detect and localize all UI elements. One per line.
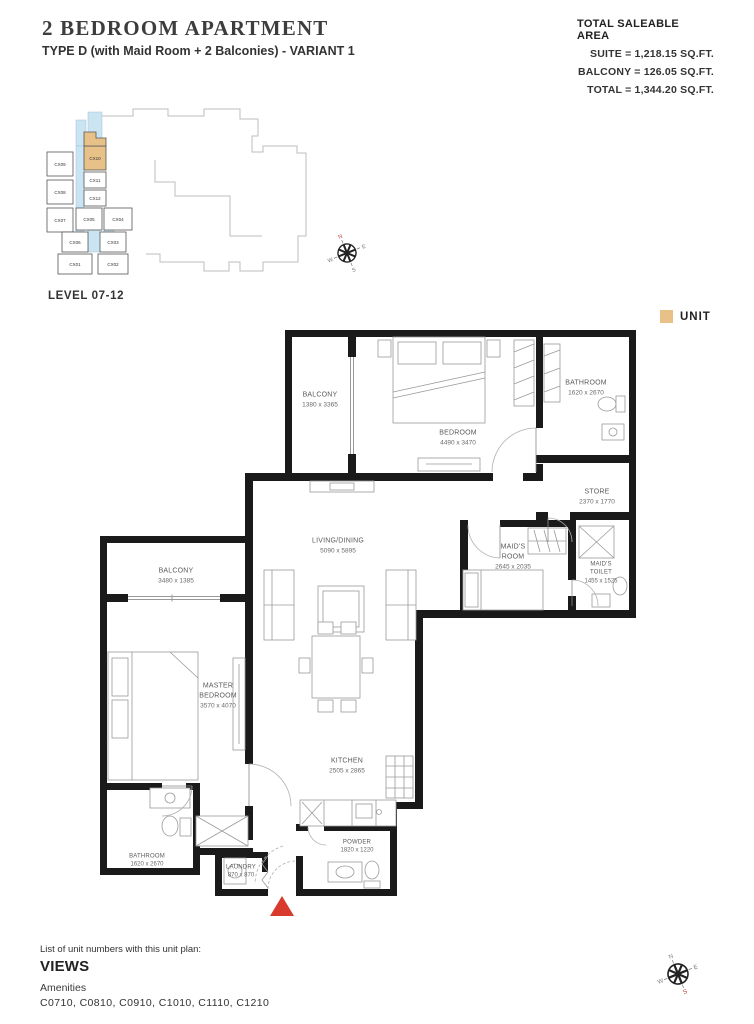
key-plan-units (47, 132, 132, 274)
room-label-balcony-top: BALCONY1380 x 3365 (290, 391, 350, 410)
key-plan-unit-label: CX02 (107, 262, 119, 267)
key-plan-unit-label: CX01 (69, 262, 81, 267)
key-plan-unit-label: CX08 (54, 190, 66, 195)
room-label-bathroom-top: BATHROOM1620 x 2670 (554, 379, 618, 398)
main-floor-plan (100, 330, 636, 916)
key-plan-unit-label: CX03 (107, 240, 119, 245)
compass-letter-w: W (327, 257, 335, 265)
room-label-powder: POWDER1820 x 1220 (331, 839, 383, 856)
compass-bottom-letter-s: S (683, 989, 689, 996)
room-label-bedroom: BEDROOM4490 x 3470 (423, 429, 493, 448)
room-label-store: STORE2370 x 1770 (567, 488, 627, 507)
key-plan-unit-label: CX11 (90, 178, 101, 183)
compass-letter-e: E (361, 244, 367, 251)
compass-bottom-letter-w: W (657, 978, 665, 986)
key-plan: CX09 CX10 CX11 CX12 CX08 CX07 CX05 CX04 … (47, 109, 306, 274)
key-plan-unit-label: CX06 (69, 240, 81, 245)
key-plan-unit-label: CX05 (83, 217, 95, 222)
room-label-maids-room: MAID'S ROOM2645 x 2035 (491, 543, 535, 572)
room-label-bathroom-bottom: BATHROOM1620 x 2670 (119, 853, 175, 870)
compass-bottom-letter-e: E (693, 964, 699, 971)
compass-icon-bottom: N E S W (650, 947, 706, 1004)
level-label: LEVEL 07-12 (48, 290, 124, 302)
compass-icon: N E S W (320, 227, 374, 281)
footer-list-label: List of unit numbers with this unit plan… (40, 944, 201, 955)
key-plan-unit-label: CX09 (54, 162, 66, 167)
key-plan-unit-label: CX12 (89, 196, 101, 201)
room-label-maids-toilet: MAID'S TOILET1455 x 1525 (581, 560, 621, 585)
unit-legend-swatch (660, 310, 673, 323)
key-plan-unit-label: CX04 (112, 217, 124, 222)
compass-letter-n: N (338, 234, 344, 241)
room-label-master-bedroom: MASTER BEDROOM3570 x 4070 (190, 682, 246, 711)
entrance-marker (270, 896, 294, 916)
room-label-kitchen: KITCHEN2505 x 2865 (317, 757, 377, 776)
key-plan-building-outline (97, 109, 306, 271)
key-plan-unit-label-highlight: CX10 (89, 156, 101, 161)
key-plan-unit-label: CX07 (54, 218, 66, 223)
compass-letter-s: S (351, 267, 357, 274)
room-label-laundry: LAUNDRY870 x 870 (219, 864, 263, 881)
plan-canvas: CX09 CX10 CX11 CX12 CX08 CX07 CX05 CX04 … (0, 0, 754, 1024)
unit-legend-label: UNIT (680, 311, 711, 323)
footer-views-label: VIEWS (40, 958, 89, 975)
footer-amenities-label: Amenities (40, 982, 86, 994)
room-label-balcony-left: BALCONY3480 x 1385 (141, 567, 211, 586)
room-label-living-dining: LIVING/DINING5090 x 5895 (293, 537, 383, 556)
floor-plan-page: 2 BEDROOM APARTMENT TYPE D (with Maid Ro… (0, 0, 754, 1024)
footer-unit-numbers: C0710, C0810, C0910, C1010, C1110, C1210 (40, 997, 269, 1009)
unit-legend: UNIT (660, 310, 711, 323)
compass-bottom-letter-n: N (668, 954, 674, 961)
